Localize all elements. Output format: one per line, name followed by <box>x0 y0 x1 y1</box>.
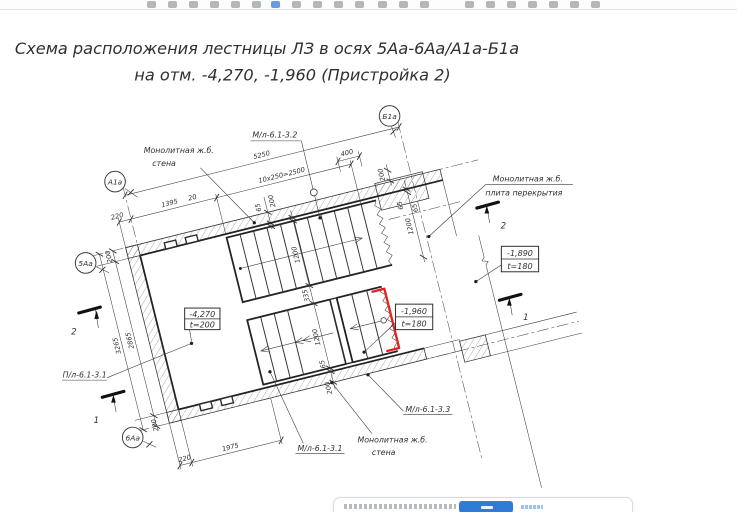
toolbar-icon[interactable] <box>465 1 474 8</box>
toolbar-icon[interactable] <box>292 1 301 8</box>
drawing-canvas[interactable]: Схема расположения лестницы ЛЗ в осях 5А… <box>0 10 737 512</box>
toolbar-icon[interactable] <box>570 1 579 8</box>
slab-edges <box>443 156 616 492</box>
dim-200-pier: 200 <box>376 168 387 182</box>
toolbar <box>0 0 737 10</box>
label-flight-top: М/л-6.1-3.2 <box>252 130 297 139</box>
elevation-box-4270: -4,270 t=200 <box>185 308 220 341</box>
section-number-1-left: 1 <box>94 416 99 426</box>
toolbar-icon[interactable] <box>399 1 408 8</box>
elevation-thickness: t=180 <box>402 320 427 329</box>
dim-65-top: 65 <box>254 202 264 212</box>
title-line-1: Схема расположения лестницы ЛЗ в осях 5А… <box>15 39 519 58</box>
axis-bubble-a1a: А1а <box>107 178 123 187</box>
notification-text <box>344 504 456 509</box>
dim-3265: 3265 <box>111 337 123 355</box>
notification-bar <box>333 497 633 512</box>
label-flight-bottom: М/л-6.1-3.1 <box>297 444 342 453</box>
toolbar-icon[interactable] <box>147 1 156 8</box>
pier-bottom <box>460 335 491 362</box>
toolbar-icon[interactable] <box>528 1 537 8</box>
toolbar-icon[interactable] <box>486 1 495 8</box>
drawing-title: Схема расположения лестницы ЛЗ в осях 5А… <box>15 39 519 84</box>
dim-200-top: 200 <box>267 194 278 208</box>
notification-link[interactable] <box>521 505 543 509</box>
notification-primary-button[interactable] <box>459 501 513 512</box>
dim-1200-right: 1200 <box>404 217 416 235</box>
elevation-mark: -4,270 <box>189 310 215 319</box>
toolbar-icon[interactable] <box>231 1 240 8</box>
section-number-2-left: 2 <box>71 328 76 338</box>
dimensions: 5250 400 220 1395 20 10х250=2500 3265 <box>76 117 470 478</box>
dim-1395: 1395 <box>160 197 178 209</box>
title-line-2: на отм. -4,270, -1,960 (Пристройка 2) <box>134 66 450 85</box>
dim-65-bottom: 65 <box>318 359 328 369</box>
toolbar-icon[interactable] <box>210 1 219 8</box>
leader-node-circle <box>310 189 317 196</box>
axis-bubble-b1a: Б1а <box>382 112 397 121</box>
toolbar-icon[interactable] <box>591 1 600 8</box>
dim-400: 400 <box>340 148 354 159</box>
label-wall-bottom-1: Монолитная ж.б. <box>357 435 427 444</box>
toolbar-icon[interactable] <box>168 1 177 8</box>
dim-5250: 5250 <box>252 149 270 161</box>
dim-335: 335 <box>301 288 312 302</box>
toolbar-icon[interactable] <box>420 1 429 8</box>
toolbar-icon[interactable] <box>355 1 364 8</box>
toolbar-icon[interactable] <box>271 1 280 8</box>
label-landing: П/л-6.1-3.1 <box>63 371 107 380</box>
toolbar-icon[interactable] <box>252 1 261 8</box>
label-wall-bottom-2: стена <box>372 448 396 457</box>
dim-2865: 2865 <box>124 331 136 349</box>
label-wall-top-2: стена <box>152 159 176 168</box>
toolbar-icon[interactable] <box>507 1 516 8</box>
section-number-2-right: 2 <box>501 222 506 232</box>
section-number-1-right: 1 <box>523 313 528 323</box>
toolbar-icons <box>0 0 737 9</box>
dim-220-top: 220 <box>110 211 124 222</box>
toolbar-icon[interactable] <box>313 1 322 8</box>
node-circle <box>380 317 387 324</box>
elevation-thickness: t=180 <box>507 262 532 271</box>
label-slab-1: Монолитная ж.б. <box>493 175 563 184</box>
axis-bubble-5aa: 5Аа <box>78 259 93 268</box>
section-marks: 2 1 2 1 <box>71 202 528 426</box>
toolbar-icon[interactable] <box>334 1 343 8</box>
elevation-thickness: t=200 <box>190 321 215 330</box>
flight-divider-wall <box>330 298 353 364</box>
toolbar-icon[interactable] <box>378 1 387 8</box>
elevation-mark: -1,890 <box>507 249 533 258</box>
label-wall-top-1: Монолитная ж.б. <box>144 146 214 155</box>
axis-bubble-6aa: 6Аа <box>126 433 141 442</box>
elevation-mark: -1,960 <box>401 307 427 316</box>
dim-2500: 10х250=2500 <box>258 166 306 185</box>
label-slab-2: плита перекрытия <box>485 188 562 197</box>
toolbar-icon[interactable] <box>189 1 198 8</box>
label-flight-right: М/л-6.1-3.3 <box>405 405 450 414</box>
button-glyph <box>481 506 493 509</box>
elevation-box-1890: -1,890 t=180 <box>474 246 538 283</box>
dim-20: 20 <box>187 193 197 203</box>
dim-220-bottom: 220 <box>178 453 192 464</box>
dim-200-left-bot: 200 <box>150 418 161 432</box>
cad-viewer-window: Схема расположения лестницы ЛЗ в осях 5А… <box>0 0 737 512</box>
toolbar-icon[interactable] <box>549 1 558 8</box>
